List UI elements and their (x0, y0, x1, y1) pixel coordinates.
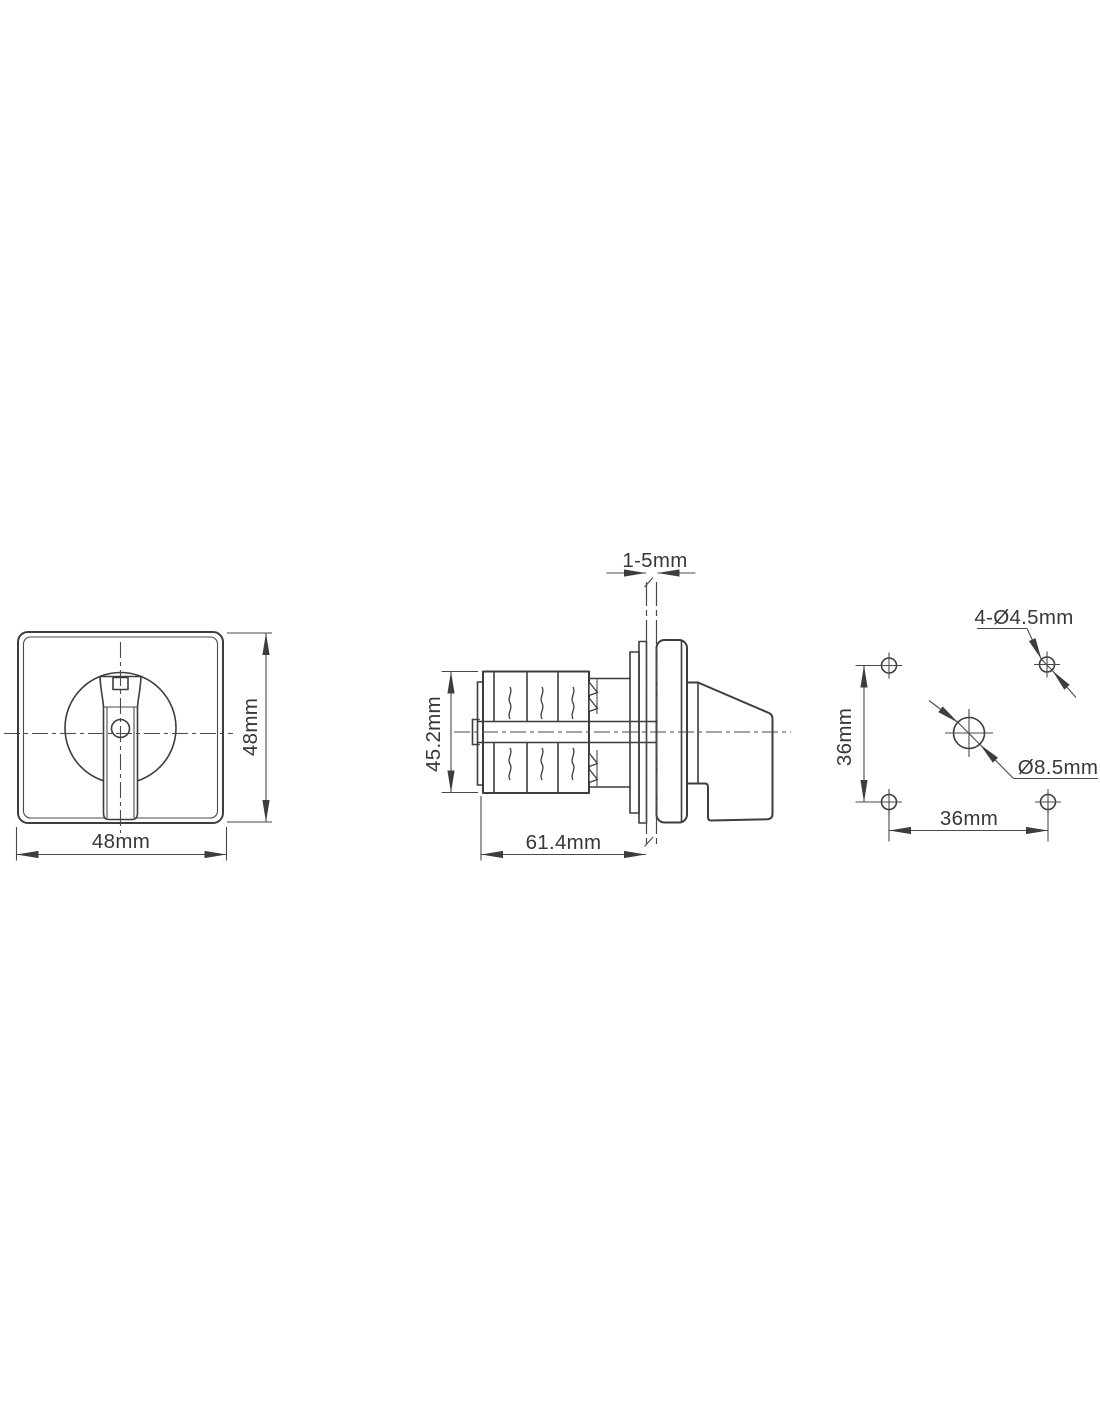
cam-wavy-lines (509, 687, 574, 780)
front-width-label: 48mm (92, 830, 150, 853)
knob-side-profile (687, 683, 773, 821)
corner-holes-label: 4-Ø4.5mm (974, 606, 1073, 629)
mounting-clip-section (589, 679, 630, 788)
front-width-dimension: 48mm (17, 827, 227, 861)
front-height-label: 48mm (239, 698, 262, 756)
hole-horizontal-spacing-label: 36mm (940, 807, 998, 830)
body-length-label: 61.4mm (526, 831, 602, 854)
mounting-view: 4-Ø4.5mm Ø8.5mm 36mm 36mm (833, 606, 1098, 842)
front-height-dimension: 48mm (227, 633, 272, 822)
corner-hole-callout: 4-Ø4.5mm (974, 606, 1076, 698)
panel-thickness-dimension: 1-5mm (607, 549, 696, 573)
front-view: 48mm 48mm (4, 632, 272, 861)
dimension-drawing-svg: 48mm 48mm (0, 0, 1100, 1422)
front-bezel (657, 640, 688, 823)
side-view: 1-5mm 45.2mm 61.4mm (422, 549, 791, 861)
hole-vertical-spacing-label: 36mm (833, 708, 856, 766)
body-length-dimension: 61.4mm (481, 796, 646, 861)
technical-drawing-page: 48mm 48mm (0, 0, 1100, 1422)
hole-horizontal-spacing-dimension: 36mm (889, 807, 1048, 842)
body-height-label: 45.2mm (422, 696, 445, 772)
panel-thickness-label: 1-5mm (622, 549, 687, 572)
hole-vertical-spacing-dimension: 36mm (833, 666, 881, 803)
center-hole-label: Ø8.5mm (1018, 756, 1098, 779)
